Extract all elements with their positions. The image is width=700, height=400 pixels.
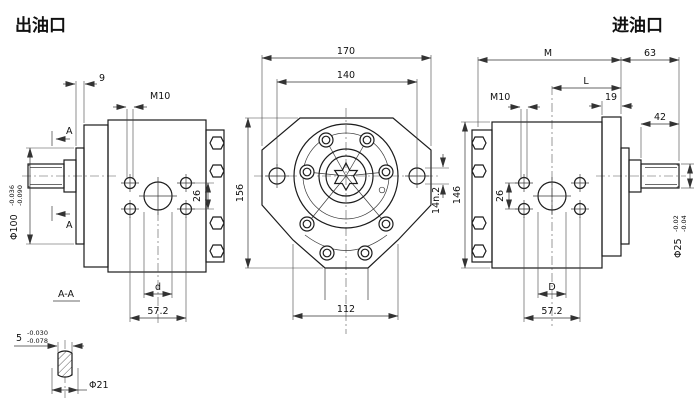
- dim-pilot-dia-group: Φ100 -0.036 -0.090: [8, 185, 24, 240]
- dim-pilot-depth: 9: [99, 73, 105, 84]
- shaft-key-section: [58, 351, 72, 377]
- left-side-view: A A 9 M10 Φ100 -0.036 -0.090 26: [8, 73, 224, 326]
- dim-bottom-width: 112: [337, 304, 355, 315]
- mounting-flange: [84, 125, 108, 267]
- pump-body-right: [492, 122, 602, 268]
- dim-section-shaft-dia: Φ21: [89, 380, 109, 391]
- section-aa-label: A-A: [58, 289, 75, 300]
- rear-cover-right: [472, 130, 492, 262]
- dim-shaft-length: 42: [654, 112, 666, 123]
- shaft-tol-lower: -0.04: [680, 215, 688, 232]
- pilot-tol-upper: -0.036: [8, 185, 16, 206]
- key-tol-lower: -0.078: [27, 337, 48, 345]
- dim-hole-spacing-v-left: 26: [192, 190, 203, 202]
- key-tol-upper: -0.030: [27, 329, 48, 337]
- mounting-flange-right: [602, 117, 621, 256]
- dim-overall-height-front: 156: [235, 184, 246, 202]
- dim-overall-height-right: 146: [452, 186, 463, 204]
- dim-shaft-dia-group: Φ25 -0.02 -0.04: [672, 215, 688, 258]
- shaft-tol-upper: -0.02: [672, 215, 680, 232]
- dim-overall-width: 170: [337, 46, 355, 57]
- section-arrow-top: A: [52, 126, 73, 146]
- pilot-boss: [76, 148, 84, 244]
- dim-port-dia-right: D: [548, 282, 555, 293]
- pump-drawing-canvas: 出油口 进油口: [0, 0, 700, 400]
- dim-shaft-extension: 63: [644, 48, 656, 59]
- thread-callout-left: M10: [150, 91, 170, 102]
- bolt-spokes: [307, 140, 386, 224]
- dim-overall-length: M: [544, 48, 552, 59]
- dim-hole-spacing-h-right: 57.2: [541, 306, 562, 317]
- dim-key-width: 5: [16, 333, 22, 344]
- section-arrow-bottom: A: [52, 206, 73, 231]
- cover-bolts: [210, 137, 224, 257]
- section-label-a-bottom: A: [66, 220, 73, 231]
- front-view: 170 140 156 112 14n.2: [235, 46, 449, 334]
- pilot-tol-lower: -0.090: [16, 185, 24, 206]
- dim-slot-width: 14n.2: [431, 187, 442, 214]
- dim-hole-spacing-v-right: 26: [495, 190, 506, 202]
- section-label-a-top: A: [66, 126, 73, 137]
- gear-pump-three-view-drawing: 出油口 进油口: [0, 0, 700, 400]
- outlet-port-label: 出油口: [15, 15, 66, 36]
- dim-slot-spacing: 140: [337, 70, 355, 81]
- section-aa-detail: A-A 5 -0.030 -0.078 Φ21: [14, 289, 109, 398]
- thread-callout-right: M10: [490, 92, 510, 103]
- dim-flange-thickness: 19: [605, 92, 617, 103]
- dim-port-dia-left: d: [155, 282, 161, 293]
- dim-pilot-dia: Φ100: [9, 214, 20, 240]
- rear-cover: [206, 130, 224, 262]
- pilot-boss-right: [621, 148, 629, 244]
- dim-shaft-dia: Φ25: [673, 238, 684, 258]
- pin-hole: [379, 187, 385, 193]
- right-side-view: M 63 L 19 42 M10 26 146 Φ2: [452, 48, 694, 326]
- inlet-port-label: 进油口: [612, 15, 663, 36]
- dim-hole-spacing-h-left: 57.2: [147, 306, 168, 317]
- dim-to-center: L: [583, 76, 589, 87]
- cover-bolts-right: [472, 137, 486, 257]
- front-body-outline: [262, 118, 431, 268]
